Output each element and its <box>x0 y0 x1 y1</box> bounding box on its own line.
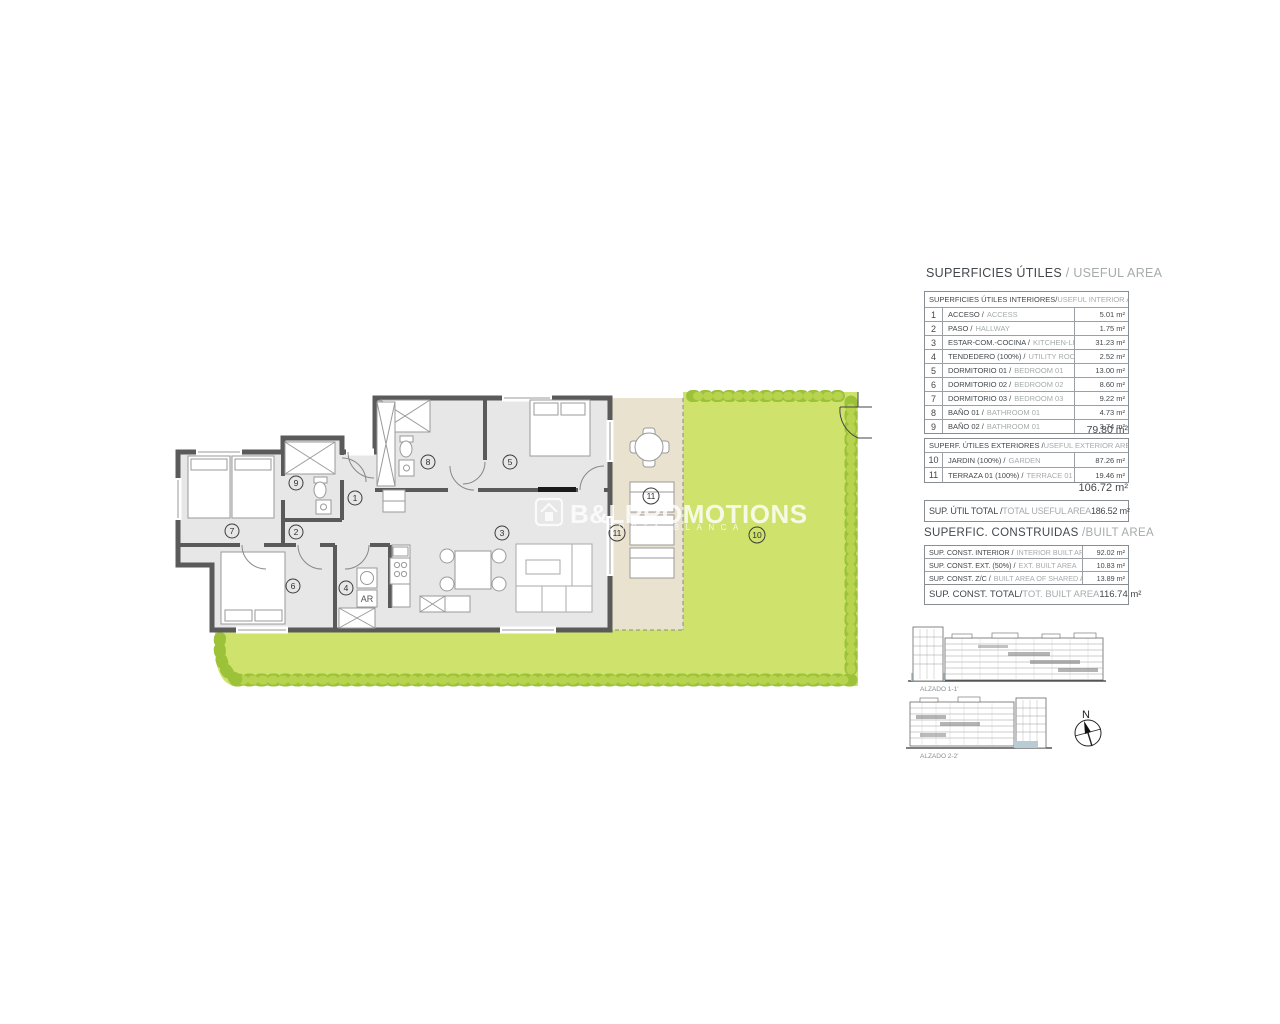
tendedero-panel <box>377 402 395 486</box>
svg-text:9: 9 <box>294 478 299 488</box>
sofa-group <box>516 544 592 612</box>
interior-area-table: SUPERFICIES ÚTILES INTERIORES/ USEFUL IN… <box>924 291 1129 434</box>
floor-plan-page: AR <box>0 0 1280 1024</box>
exterior-subtotal: 106.72 m² <box>1078 482 1128 494</box>
interior-subtotal: 79.80 m² <box>1087 424 1128 436</box>
interior-table-header: SUPERFICIES ÚTILES INTERIORES/ USEFUL IN… <box>925 292 1128 307</box>
svg-text:10: 10 <box>752 530 762 540</box>
north-label: N <box>1082 709 1090 721</box>
total-built-area-value: 116.74 m² <box>1099 589 1141 600</box>
window-sill-dark <box>538 487 576 492</box>
floor-plan-svg: AR <box>130 378 890 712</box>
table-row: SUP. CONST. EXT. (50%) /EXT. BUILT AREA1… <box>925 558 1128 571</box>
elevation-2-drawing: ALZADO 2-2' <box>906 697 1052 760</box>
built-area-title: SUPERFIC. CONSTRUIDAS /BUILT AREA <box>924 527 1154 539</box>
svg-text:3: 3 <box>500 528 505 538</box>
svg-text:11: 11 <box>613 528 622 538</box>
compass: N <box>1075 709 1101 746</box>
elevation-1-drawing: ALZADO 1-1' <box>908 627 1106 693</box>
table-row: 4TENDEDERO (100%) /UTILITY ROOM2.52 m² <box>925 349 1128 363</box>
total-built-area-row: SUP. CONST. TOTAL/TOT. BUILT AREA 116.74… <box>925 584 1128 604</box>
useful-area-title: SUPERFICIES ÚTILES / USEFUL AREA <box>926 266 1162 280</box>
table-row: 5DORMITORIO 01 /BEDROOM 0113.00 m² <box>925 363 1128 377</box>
table-row: SUP. CONST. Z/C /BUILT AREA OF SHARED AR… <box>925 571 1128 584</box>
exterior-table-header: SUPERF. ÚTILES EXTERIORES / USEFUL EXTER… <box>925 439 1128 452</box>
elevations-svg: ALZADO 1-1' <box>900 612 1150 772</box>
table-row: 11TERRAZA 01 (100%) /TERRACE 0119.46 m² <box>925 467 1128 482</box>
svg-text:2: 2 <box>294 527 299 537</box>
table-row: 10JARDIN (100%) /GARDEN87.26 m² <box>925 452 1128 467</box>
svg-text:7: 7 <box>230 526 235 536</box>
table-row: 8BAÑO 01 /BATHROOM 014.73 m² <box>925 405 1128 419</box>
ar-label: AR <box>361 594 374 604</box>
total-useful-area-row: SUP. ÚTIL TOTAL /TOTAL USEFUL AREA 186.5… <box>924 500 1129 522</box>
svg-text:8: 8 <box>426 457 431 467</box>
table-row: 3ESTAR-COM.-COCINA /KITCHEN-LIVING31.23 … <box>925 335 1128 349</box>
exterior-area-table: SUPERF. ÚTILES EXTERIORES / USEFUL EXTER… <box>924 438 1129 483</box>
svg-text:1: 1 <box>353 493 358 503</box>
svg-text:6: 6 <box>291 581 296 591</box>
table-row: 6DORMITORIO 02 /BEDROOM 028.60 m² <box>925 377 1128 391</box>
total-useful-area-value: 186.52 m² <box>1091 506 1130 516</box>
table-row: 7DORMITORIO 03 /BEDROOM 039.22 m² <box>925 391 1128 405</box>
bedroom-02-bed <box>221 552 285 624</box>
table-row: 1ACCESO /ACCESS5.01 m² <box>925 307 1128 321</box>
built-area-table: SUP. CONST. INTERIOR /INTERIOR BUILT ARE… <box>924 545 1129 605</box>
table-row: SUP. CONST. INTERIOR /INTERIOR BUILT ARE… <box>925 546 1128 558</box>
table-row: 2PASO /HALLWAY1.75 m² <box>925 321 1128 335</box>
elevation-1-label: ALZADO 1-1' <box>920 686 958 693</box>
svg-text:4: 4 <box>344 583 349 593</box>
svg-text:11: 11 <box>647 491 656 501</box>
elevation-2-label: ALZADO 2-2' <box>920 753 958 760</box>
svg-text:5: 5 <box>508 457 513 467</box>
bedroom-01-bed <box>530 400 590 456</box>
